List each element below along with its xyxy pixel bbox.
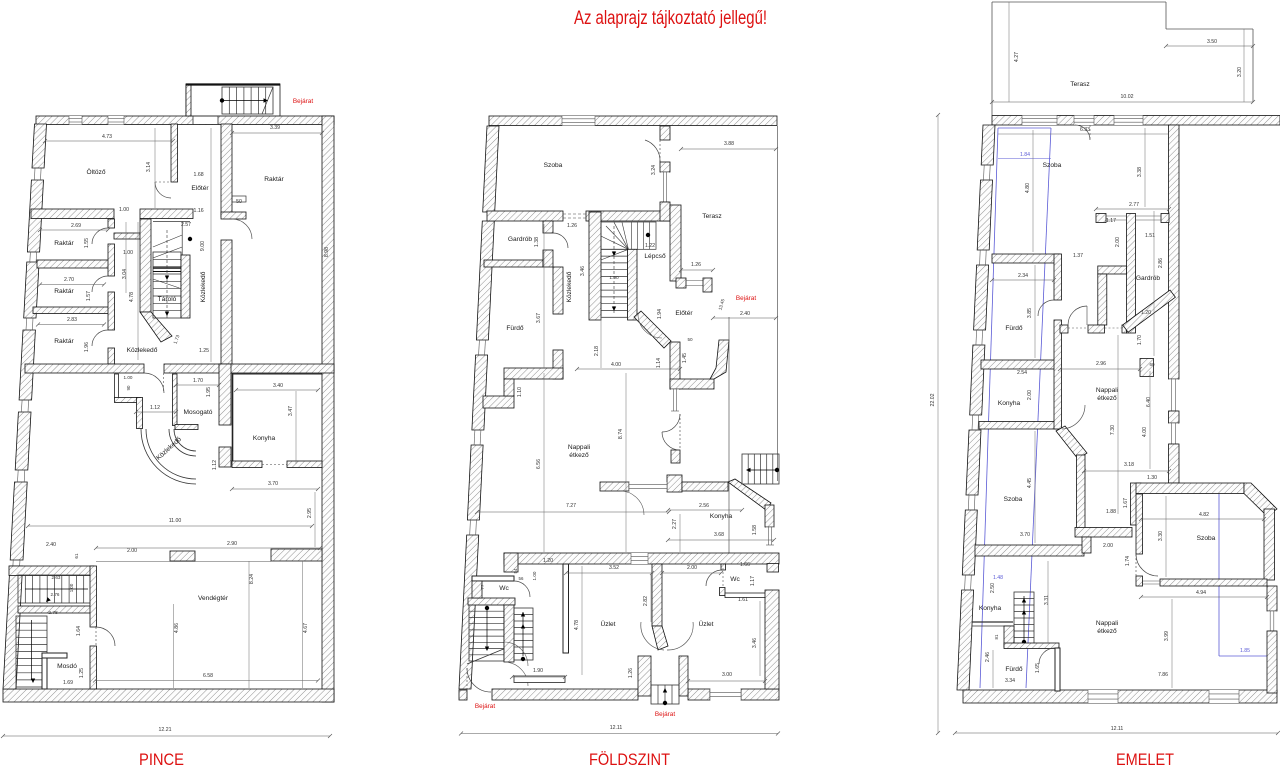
svg-text:3.04: 3.04: [122, 269, 128, 279]
svg-text:Közlekedő: Közlekedő: [566, 271, 573, 302]
svg-text:1.94: 1.94: [657, 309, 663, 319]
svg-text:Raktár: Raktár: [54, 240, 74, 247]
svg-text:Üzlet: Üzlet: [600, 620, 615, 628]
svg-text:Lépcső: Lépcső: [644, 253, 666, 260]
svg-text:Nappali: Nappali: [568, 444, 591, 451]
svg-text:1.84: 1.84: [1020, 152, 1030, 158]
svg-text:1.38: 1.38: [534, 237, 540, 247]
svg-text:3.68: 3.68: [714, 532, 724, 538]
svg-text:2.56: 2.56: [699, 503, 709, 509]
svg-text:4.94: 4.94: [1196, 590, 1206, 596]
svg-text:50: 50: [687, 337, 693, 342]
svg-text:6.33: 6.33: [1080, 127, 1090, 133]
svg-text:2.50: 2.50: [990, 583, 996, 593]
svg-text:56: 56: [519, 576, 524, 581]
svg-text:3.46: 3.46: [752, 638, 758, 648]
svg-text:1.90: 1.90: [609, 275, 619, 281]
svg-text:1.96: 1.96: [84, 342, 90, 352]
svg-text:Mosdó: Mosdó: [57, 663, 77, 670]
svg-text:Nappali: Nappali: [1096, 387, 1119, 394]
svg-text:Szoba: Szoba: [1004, 496, 1023, 503]
svg-text:3.31: 3.31: [1044, 595, 1050, 605]
svg-text:60: 60: [1149, 362, 1155, 367]
svg-text:4.86: 4.86: [174, 623, 180, 633]
svg-text:77: 77: [480, 584, 485, 589]
svg-text:4.45: 4.45: [1027, 478, 1033, 488]
svg-text:Előtér: Előtér: [191, 185, 209, 192]
svg-text:2.78: 2.78: [48, 610, 58, 616]
svg-text:3.38: 3.38: [1137, 167, 1143, 177]
svg-text:3.14: 3.14: [146, 162, 152, 172]
svg-text:1.55: 1.55: [84, 238, 90, 248]
svg-text:Szoba: Szoba: [1197, 535, 1216, 542]
svg-text:12.21: 12.21: [159, 727, 172, 733]
svg-text:3.70: 3.70: [1020, 532, 1030, 538]
svg-text:3.99: 3.99: [1164, 631, 1170, 641]
svg-text:1.64: 1.64: [76, 626, 82, 636]
svg-text:Gardrób: Gardrób: [1136, 275, 1161, 282]
svg-text:1.61: 1.61: [738, 597, 748, 603]
svg-text:1.26: 1.26: [628, 668, 634, 678]
svg-text:1.00: 1.00: [124, 375, 133, 380]
svg-text:Előtér: Előtér: [675, 310, 693, 317]
svg-text:Szoba: Szoba: [544, 162, 563, 169]
svg-text:2.00: 2.00: [1103, 543, 1113, 549]
svg-text:1.00: 1.00: [123, 250, 133, 256]
svg-text:Konyha: Konyha: [998, 400, 1021, 407]
svg-text:Az alaprajz tájkoztató jellegű: Az alaprajz tájkoztató jellegű!: [574, 8, 767, 29]
svg-text:1.90: 1.90: [533, 668, 543, 674]
svg-text:Öltöző: Öltöző: [86, 168, 105, 176]
svg-text:8.98: 8.98: [324, 247, 330, 257]
svg-text:2.86: 2.86: [1158, 258, 1164, 268]
svg-text:EMELET: EMELET: [1116, 750, 1174, 765]
svg-text:Fürdő: Fürdő: [1005, 666, 1023, 673]
svg-text:2.34: 2.34: [1018, 273, 1028, 279]
svg-text:1.88: 1.88: [1106, 509, 1116, 515]
svg-text:1.17: 1.17: [750, 576, 756, 586]
svg-text:1.25: 1.25: [79, 668, 85, 678]
svg-text:22.02: 22.02: [930, 393, 936, 406]
svg-text:1.25: 1.25: [199, 348, 209, 354]
svg-text:Közlekedő: Közlekedő: [127, 347, 158, 354]
svg-text:4.00: 4.00: [611, 362, 621, 368]
svg-text:50: 50: [236, 199, 242, 205]
svg-text:10.02: 10.02: [1121, 94, 1134, 100]
svg-text:4.78: 4.78: [129, 292, 135, 302]
svg-text:étkező: étkező: [1097, 395, 1117, 402]
svg-text:61: 61: [74, 553, 79, 559]
svg-text:7.30: 7.30: [1110, 425, 1116, 435]
svg-text:4.27: 4.27: [1014, 52, 1020, 62]
svg-text:3.20: 3.20: [1237, 67, 1243, 77]
svg-text:2.46: 2.46: [985, 652, 991, 662]
svg-text:1.12: 1.12: [212, 460, 218, 470]
svg-text:4.00: 4.00: [1142, 427, 1148, 437]
svg-text:2.00: 2.00: [1115, 237, 1121, 247]
svg-text:7.86: 7.86: [1158, 672, 1168, 678]
svg-text:12.11: 12.11: [1111, 726, 1124, 732]
svg-text:3.18: 3.18: [1124, 462, 1134, 468]
svg-text:1.67: 1.67: [1123, 498, 1129, 508]
svg-text:Konyha: Konyha: [253, 435, 276, 442]
svg-text:1.74: 1.74: [1125, 556, 1131, 566]
svg-text:Vendégtér: Vendégtér: [198, 595, 229, 602]
svg-text:1.51: 1.51: [1145, 233, 1155, 239]
svg-text:1.00: 1.00: [532, 571, 537, 580]
svg-text:Konyha: Konyha: [979, 605, 1002, 612]
svg-text:1.57: 1.57: [86, 291, 92, 301]
svg-text:2.27: 2.27: [672, 519, 678, 529]
svg-text:2.70: 2.70: [64, 277, 74, 283]
svg-text:Bejárat: Bejárat: [475, 703, 495, 710]
svg-text:1.85: 1.85: [1240, 648, 1250, 654]
svg-text:3.00: 3.00: [722, 672, 732, 678]
svg-text:Gardrób: Gardrób: [508, 236, 533, 243]
svg-text:Wc: Wc: [499, 585, 509, 592]
svg-text:1.70: 1.70: [193, 378, 203, 384]
svg-text:Raktár: Raktár: [54, 288, 74, 295]
svg-text:2.82: 2.82: [643, 596, 649, 606]
svg-text:1.16: 1.16: [194, 208, 204, 214]
svg-text:1.95: 1.95: [206, 387, 212, 397]
svg-text:3.24: 3.24: [651, 165, 657, 175]
svg-text:54: 54: [513, 568, 518, 573]
svg-text:Tároló: Tároló: [158, 296, 177, 303]
svg-text:3.47: 3.47: [288, 406, 294, 416]
svg-text:2.40: 2.40: [46, 542, 56, 548]
svg-text:PINCE: PINCE: [139, 750, 184, 765]
svg-text:1.00: 1.00: [119, 207, 129, 213]
svg-text:4.78: 4.78: [574, 620, 580, 630]
svg-text:3.39: 3.39: [270, 125, 280, 131]
svg-text:2.69: 2.69: [71, 223, 81, 229]
svg-text:3.34: 3.34: [1005, 678, 1015, 684]
svg-text:Mosogató: Mosogató: [184, 409, 213, 416]
svg-text:2.90: 2.90: [227, 541, 237, 547]
svg-text:Bejárat: Bejárat: [293, 98, 313, 105]
svg-text:1.30: 1.30: [1147, 475, 1157, 481]
svg-text:2.54: 2.54: [1017, 370, 1027, 376]
svg-text:Raktár: Raktár: [54, 338, 74, 345]
svg-text:12.11: 12.11: [610, 725, 623, 731]
svg-text:3.85: 3.85: [1027, 308, 1033, 318]
svg-text:2.83: 2.83: [67, 317, 77, 323]
svg-text:1.20: 1.20: [1141, 310, 1151, 316]
svg-text:2.95: 2.95: [307, 508, 313, 518]
svg-text:81: 81: [994, 634, 999, 639]
svg-text:1.10: 1.10: [517, 387, 523, 397]
svg-text:1.12: 1.12: [150, 405, 160, 411]
svg-text:2.76: 2.76: [51, 592, 60, 597]
svg-text:2.18: 2.18: [594, 346, 600, 356]
svg-text:1.45: 1.45: [682, 353, 688, 363]
svg-text:3.30: 3.30: [1158, 531, 1164, 541]
svg-text:1.66: 1.66: [740, 562, 750, 568]
svg-text:1.68: 1.68: [194, 172, 204, 178]
svg-text:1.14: 1.14: [656, 358, 662, 368]
svg-text:2.57: 2.57: [181, 222, 191, 228]
svg-text:Konyha: Konyha: [710, 513, 733, 520]
svg-text:Bejárat: Bejárat: [655, 711, 675, 718]
svg-text:3.88: 3.88: [724, 141, 734, 147]
svg-text:90: 90: [126, 385, 131, 390]
svg-text:4.67: 4.67: [303, 623, 309, 633]
svg-text:3.40: 3.40: [273, 383, 283, 389]
svg-text:3.67: 3.67: [536, 313, 542, 323]
svg-text:1.17: 1.17: [1106, 218, 1116, 224]
svg-text:4.80: 4.80: [1025, 183, 1031, 193]
svg-text:2.00: 2.00: [127, 548, 137, 554]
svg-text:Nappali: Nappali: [1096, 620, 1119, 627]
svg-text:2.63: 2.63: [52, 575, 61, 580]
svg-text:1.22: 1.22: [645, 243, 655, 249]
svg-text:Üzlet: Üzlet: [698, 620, 713, 628]
svg-text:1.69: 1.69: [63, 680, 73, 686]
svg-text:1.58: 1.58: [752, 525, 758, 535]
svg-text:3.70: 3.70: [268, 481, 278, 487]
svg-text:Wc: Wc: [730, 576, 740, 583]
svg-text:3.50: 3.50: [1207, 39, 1217, 45]
svg-text:étkező: étkező: [569, 452, 589, 459]
svg-text:4.73: 4.73: [102, 134, 112, 140]
svg-text:Terasz: Terasz: [1070, 81, 1089, 88]
svg-text:Raktár: Raktár: [264, 176, 284, 183]
svg-text:3.52: 3.52: [609, 565, 619, 571]
svg-text:2.00: 2.00: [1027, 390, 1033, 400]
svg-text:2.96: 2.96: [1096, 361, 1106, 367]
svg-text:1.26: 1.26: [567, 223, 577, 229]
svg-text:FÖLDSZINT: FÖLDSZINT: [589, 750, 670, 765]
svg-text:1.20: 1.20: [543, 558, 553, 564]
svg-text:7.27: 7.27: [566, 503, 576, 509]
svg-text:2.77: 2.77: [1129, 202, 1139, 208]
svg-text:1.48: 1.48: [993, 575, 1003, 581]
svg-text:Szoba: Szoba: [1043, 162, 1062, 169]
svg-text:2.00: 2.00: [687, 565, 697, 571]
svg-text:1.26: 1.26: [691, 262, 701, 268]
svg-text:1.37: 1.37: [1073, 253, 1083, 259]
svg-text:étkező: étkező: [1097, 628, 1117, 635]
svg-text:2.40: 2.40: [740, 311, 750, 317]
svg-text:4.82: 4.82: [1199, 512, 1209, 518]
svg-text:8.74: 8.74: [618, 429, 624, 439]
svg-text:1.65: 1.65: [1035, 663, 1041, 673]
svg-text:Bejárat: Bejárat: [736, 295, 756, 302]
svg-text:Fürdő: Fürdő: [1005, 325, 1023, 332]
svg-text:6.40: 6.40: [1146, 397, 1152, 407]
svg-text:6.56: 6.56: [536, 459, 542, 469]
svg-text:8.24: 8.24: [249, 574, 255, 584]
svg-text:Fürdő: Fürdő: [506, 325, 524, 332]
svg-text:1.00: 1.00: [69, 583, 74, 592]
svg-text:1.70: 1.70: [1137, 335, 1143, 345]
svg-text:9.00: 9.00: [200, 241, 206, 251]
svg-text:11.00: 11.00: [169, 518, 182, 524]
svg-text:6.58: 6.58: [203, 673, 213, 679]
svg-text:3.46: 3.46: [580, 266, 586, 276]
svg-text:Terasz: Terasz: [702, 213, 721, 220]
svg-text:Közlekedő: Közlekedő: [200, 271, 207, 302]
